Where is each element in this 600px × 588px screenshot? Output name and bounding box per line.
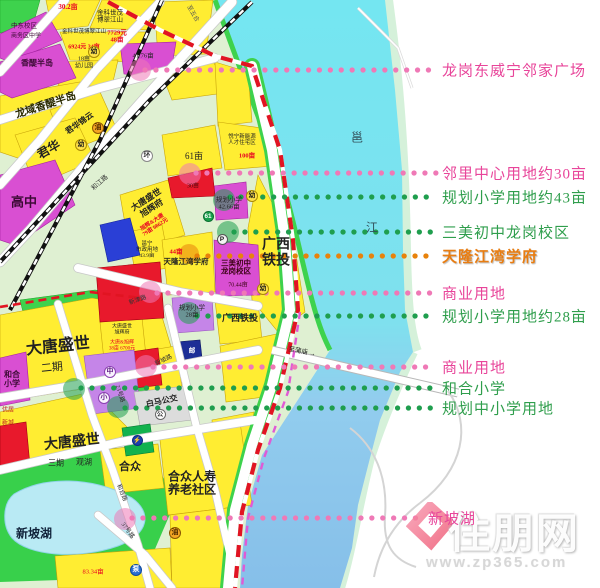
map-anchor-dot — [139, 281, 161, 303]
parcel-bus-depot — [134, 386, 192, 426]
planning-map-screenshot: 30.2亩金科世茂 博翠江山7729元 48亩金科世茂博翠江山6924元 34亩… — [0, 0, 600, 588]
map-anchor-dot — [63, 378, 85, 400]
map-anchor-dot — [179, 163, 201, 185]
map-anchor-dot — [135, 355, 157, 377]
watermark-url: www.zp365.com — [426, 554, 567, 571]
map-anchor-dot — [107, 396, 129, 418]
watermark: 住朋网 www.zp365.com — [404, 492, 594, 582]
map-anchor-dot — [179, 244, 199, 264]
map-anchor-dot — [213, 189, 235, 211]
map-anchor-dot — [114, 508, 136, 530]
map-anchor-dot — [178, 302, 200, 324]
map-anchor-dot — [129, 59, 151, 81]
watermark-brand: 住朋网 — [448, 500, 580, 561]
map-anchor-dot — [217, 221, 239, 243]
